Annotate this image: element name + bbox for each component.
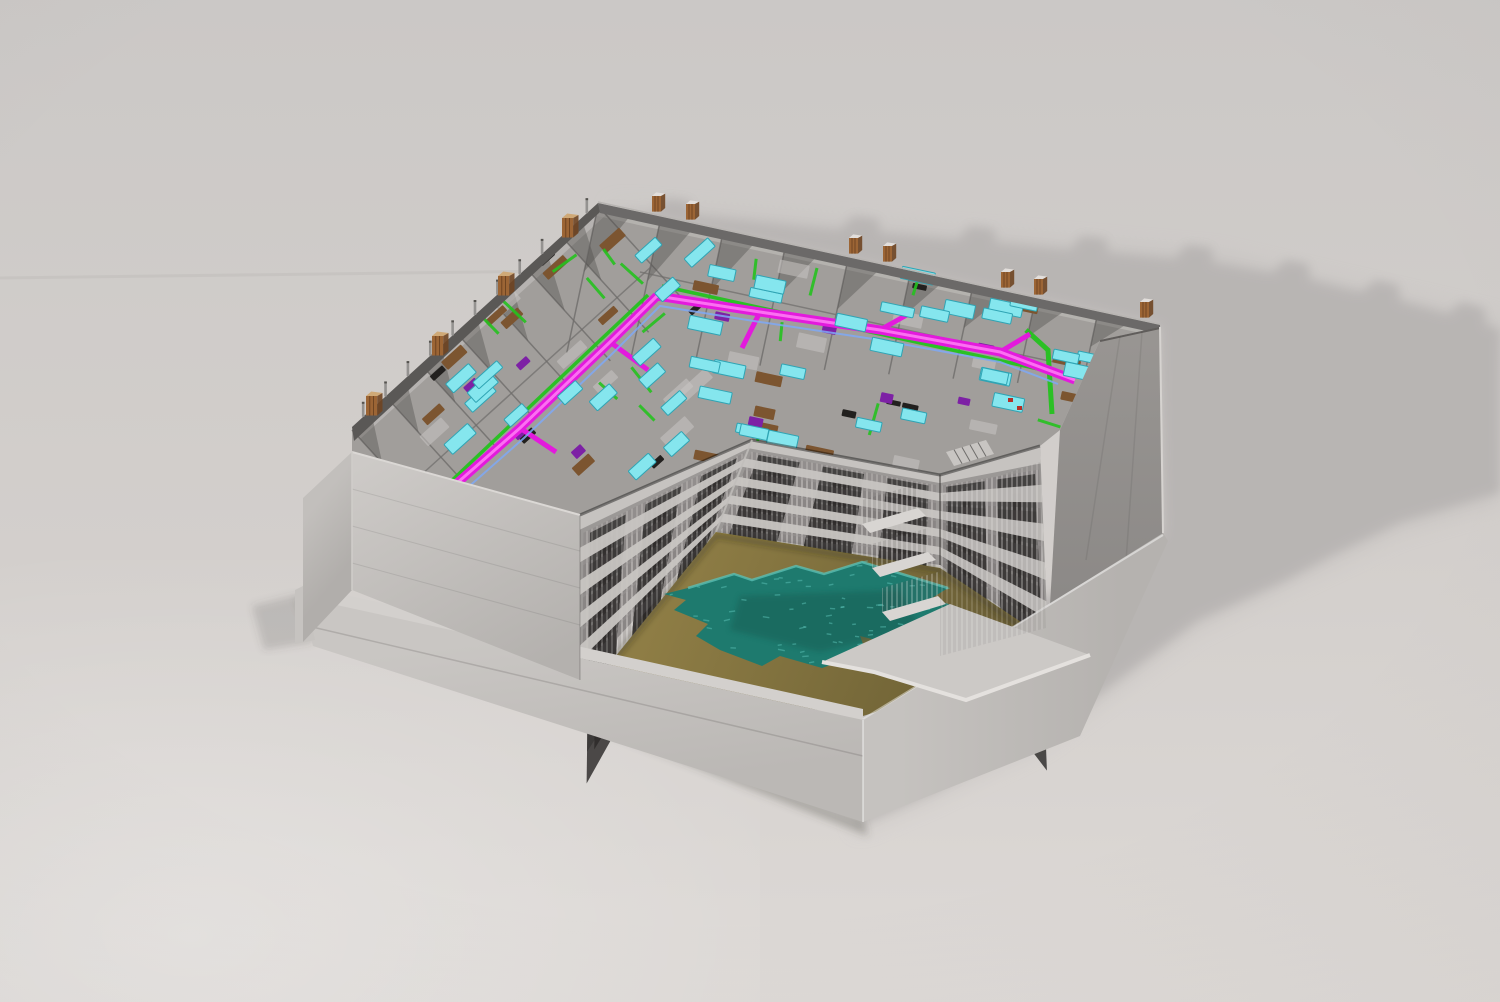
- vignette: [0, 0, 1500, 1002]
- bim-3d-render: [0, 0, 1500, 1002]
- bim-render-stage: Isometric 3D BIM rendering of a U-shaped…: [0, 0, 1500, 1002]
